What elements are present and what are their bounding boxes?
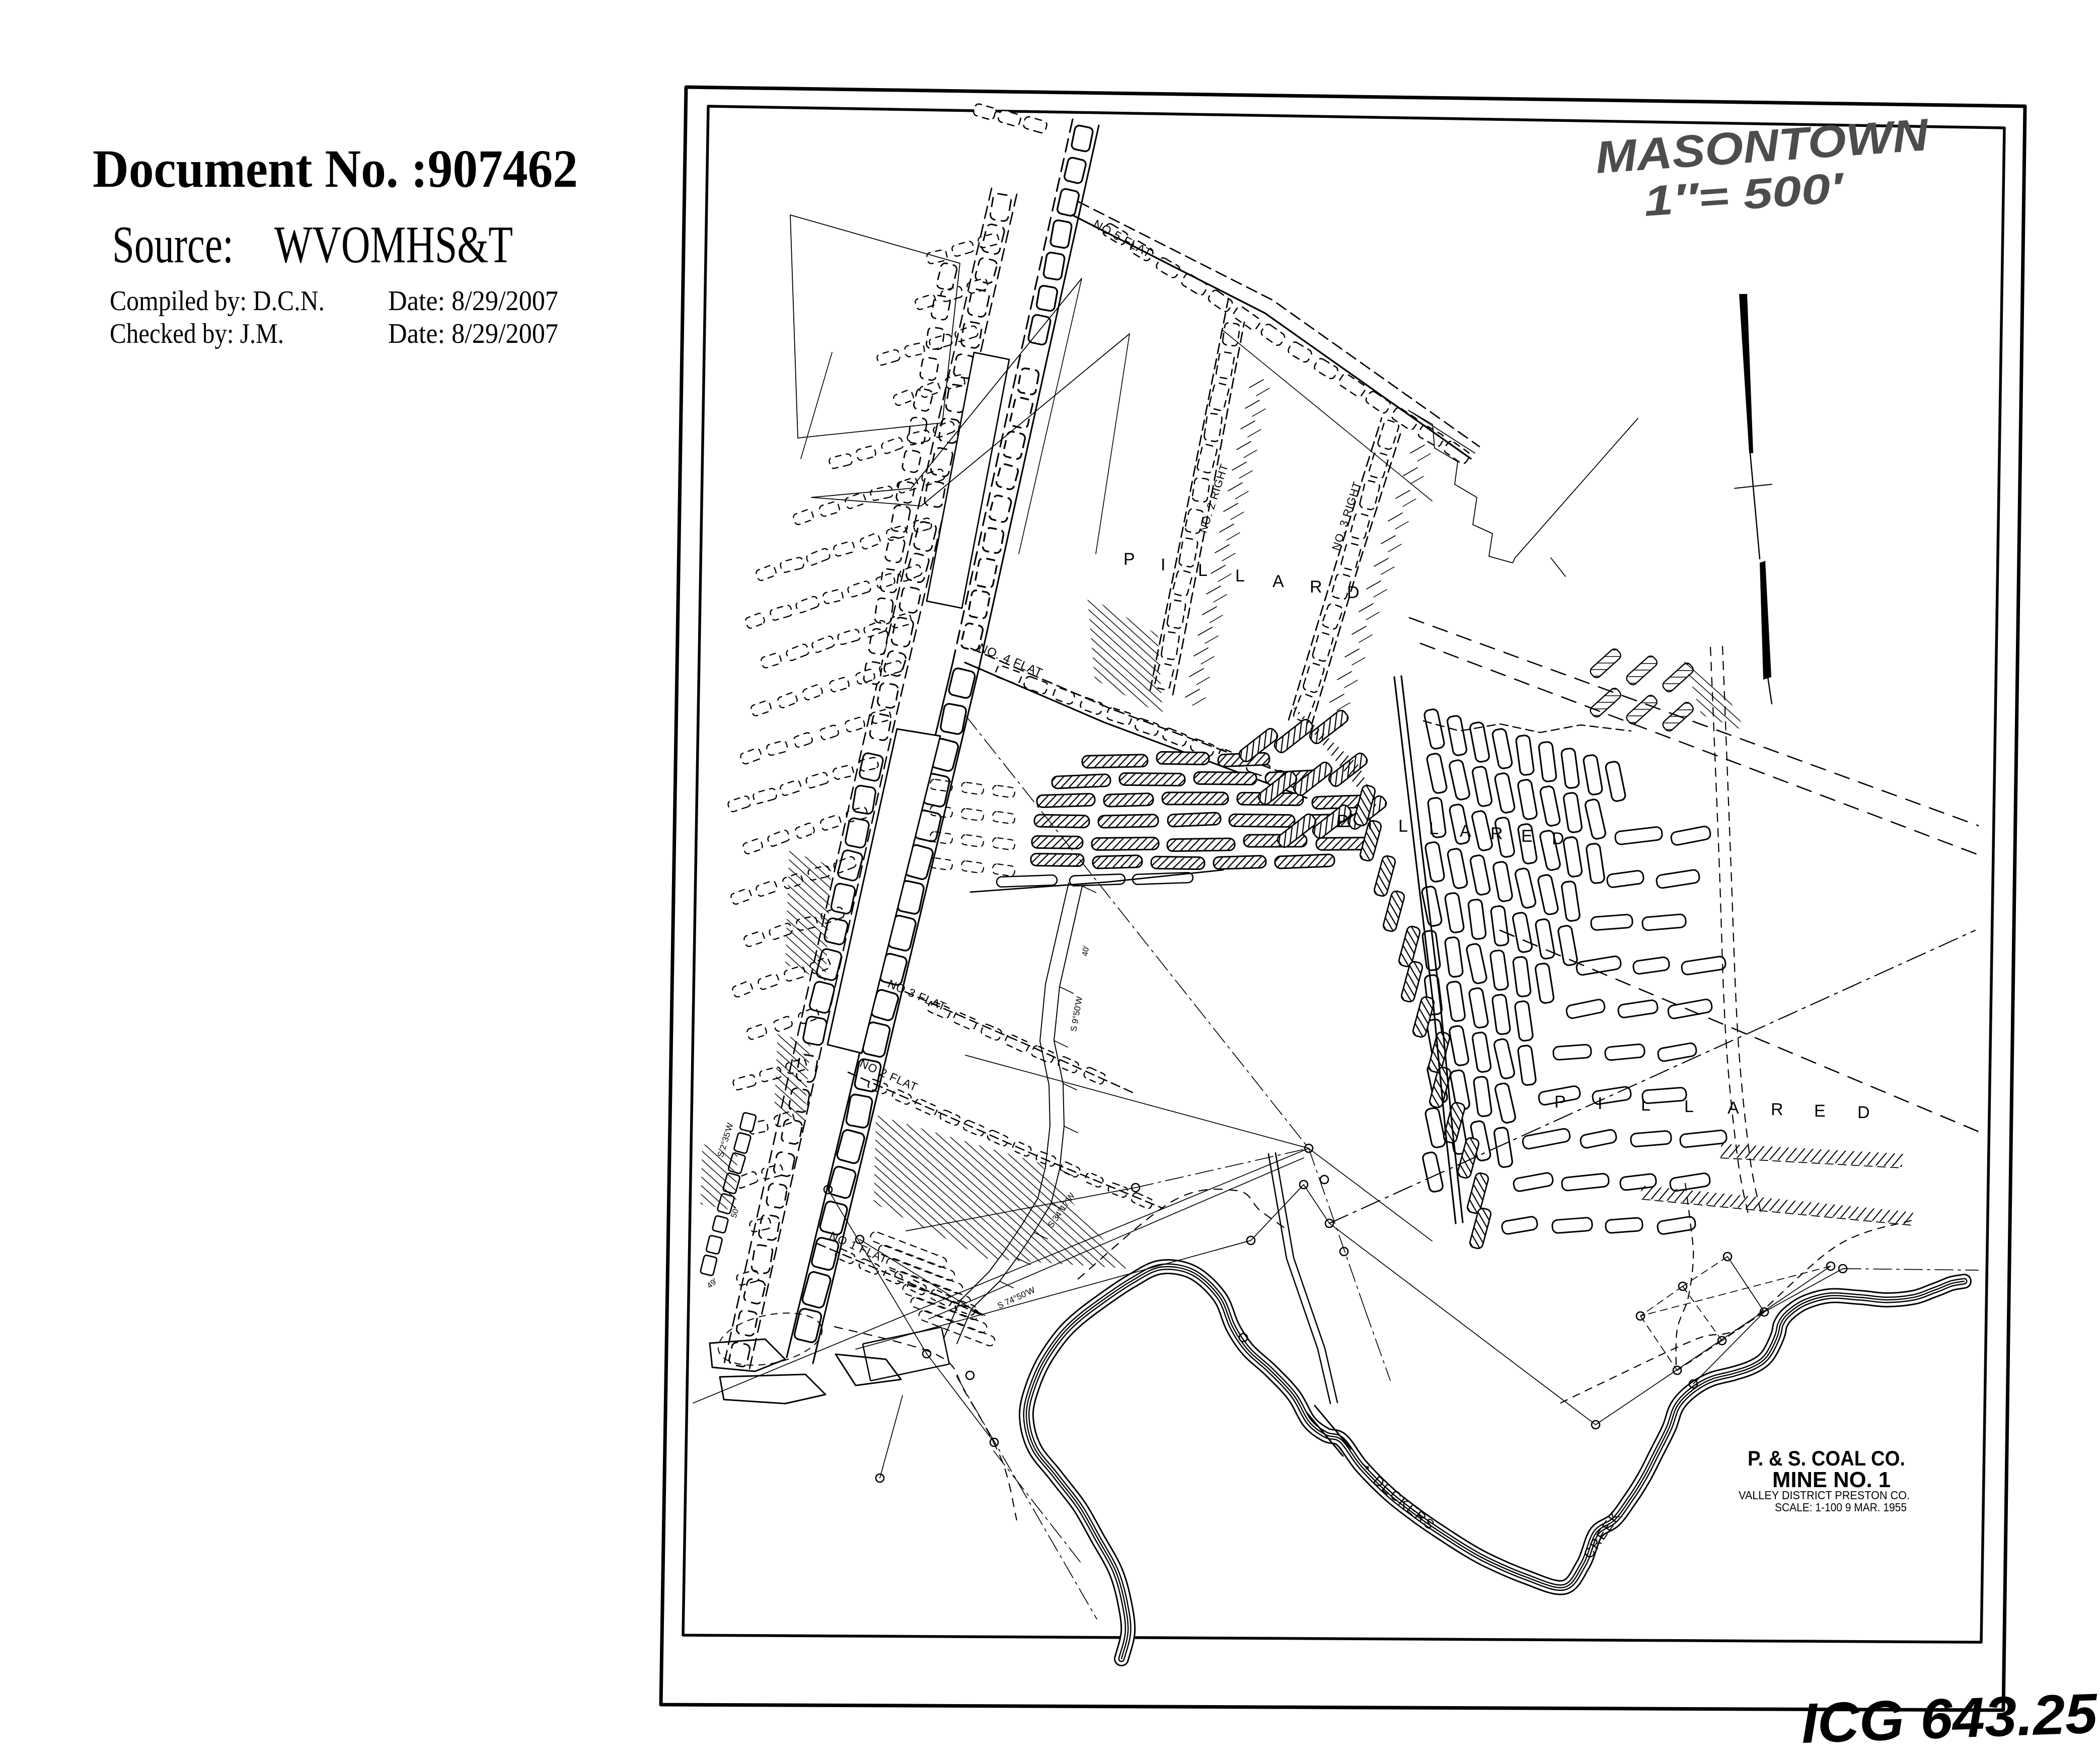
- svg-text:L: L: [1198, 561, 1208, 580]
- svg-text:Document No. :907462: Document No. :907462: [93, 139, 578, 199]
- svg-text:P. & S. COAL CO.: P. & S. COAL CO.: [1748, 1446, 1905, 1470]
- svg-text:SCALE: 1-100 9 MAR. 1955: SCALE: 1-100 9 MAR. 1955: [1775, 1501, 1907, 1514]
- svg-text:VALLEY DISTRICT PRESTON CO.: VALLEY DISTRICT PRESTON CO.: [1739, 1489, 1910, 1502]
- svg-text:D: D: [1347, 583, 1360, 602]
- svg-text:A: A: [1460, 822, 1471, 841]
- svg-text:I: I: [1598, 1094, 1602, 1113]
- svg-text:Compiled by: D.C.N.: Compiled by: D.C.N.: [110, 285, 325, 317]
- svg-text:E: E: [1814, 1102, 1826, 1121]
- svg-text:D: D: [1552, 829, 1564, 848]
- svg-text:Checked by: J.M.: Checked by: J.M.: [110, 318, 284, 349]
- svg-text:I: I: [1368, 814, 1372, 833]
- svg-text:R: R: [1310, 577, 1322, 597]
- svg-text:D: D: [1857, 1103, 1870, 1122]
- svg-text:L: L: [1235, 566, 1245, 585]
- svg-text:A: A: [1272, 572, 1284, 591]
- svg-text:L: L: [1398, 817, 1408, 836]
- svg-text:ICG 643.25: ICG 643.25: [1800, 1681, 2099, 1755]
- svg-text:P: P: [1337, 812, 1348, 831]
- svg-text:WVOMHS&T: WVOMHS&T: [274, 215, 513, 274]
- svg-text:E: E: [1521, 827, 1533, 846]
- svg-text:Date: 8/29/2007: Date: 8/29/2007: [388, 318, 558, 349]
- svg-text:P: P: [1123, 550, 1135, 569]
- svg-text:40′: 40′: [1081, 945, 1091, 957]
- svg-text:R: R: [1490, 824, 1503, 843]
- svg-text:Date: 8/29/2007: Date: 8/29/2007: [388, 285, 558, 317]
- svg-text:R: R: [1771, 1100, 1783, 1119]
- svg-text:L: L: [1641, 1095, 1651, 1115]
- svg-text:L: L: [1684, 1097, 1694, 1116]
- svg-text:I: I: [1161, 555, 1165, 574]
- svg-text:A: A: [1728, 1098, 1739, 1118]
- svg-text:L: L: [1429, 819, 1439, 838]
- svg-text:Source:: Source:: [112, 215, 234, 274]
- svg-text:P: P: [1554, 1092, 1566, 1112]
